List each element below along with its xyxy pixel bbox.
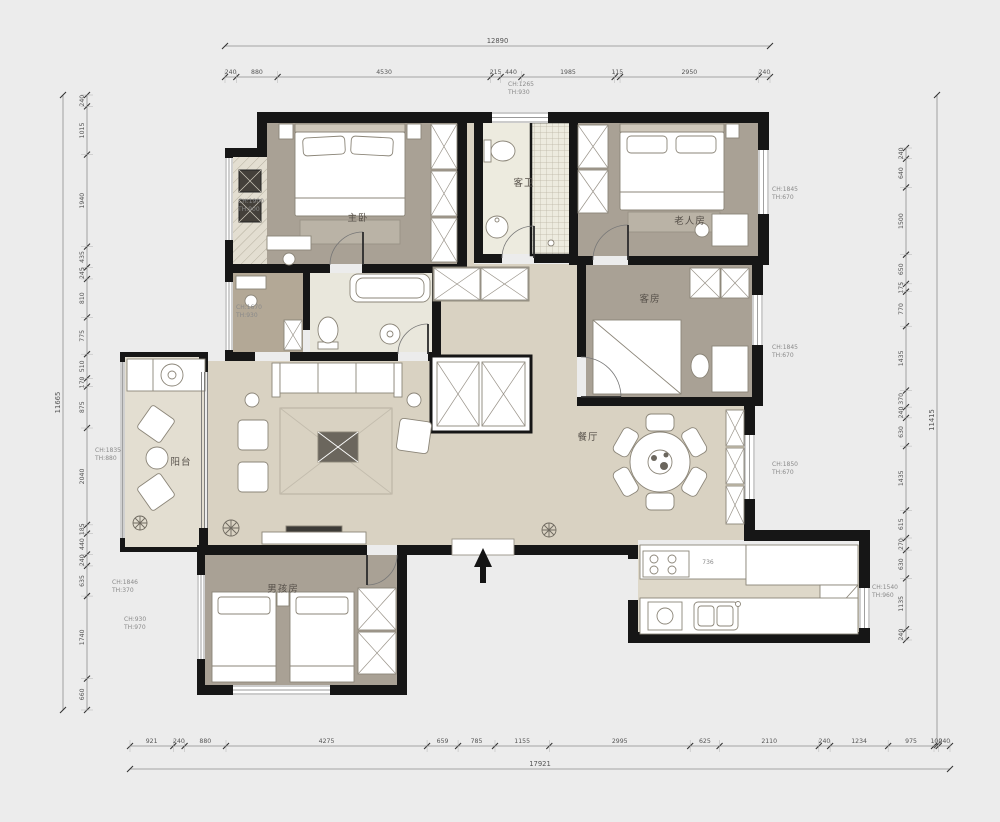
dimension-label: 775 (79, 330, 86, 342)
dimension-label: 510 (79, 360, 86, 372)
window (197, 575, 205, 659)
dimension-label: 2040 (79, 469, 86, 485)
dimension-label: 240 (225, 69, 237, 76)
window-annotation-dining-right: CH:1850TH:670 (771, 461, 798, 476)
wall (744, 530, 870, 541)
wall (197, 685, 233, 695)
dimension-label: 240 (819, 738, 831, 745)
window (492, 112, 548, 123)
dimension-total-label: 11665 (54, 392, 62, 414)
dimension-chain-bottom-total: 17921 (127, 760, 953, 772)
dimension-label: 4530 (376, 69, 392, 76)
wall (569, 112, 578, 263)
dimension-label: 1985 (560, 69, 576, 76)
cabinet-cell (431, 171, 457, 216)
cabinet-cell (481, 268, 528, 300)
room-label-elder-room: 老人房 (674, 215, 706, 227)
dimension-chain-top: 240880453021544019851152950240 (222, 69, 773, 83)
dimension-label: 1940 (79, 193, 86, 209)
window (233, 685, 330, 695)
cabinet-cell (431, 124, 457, 169)
floor (467, 123, 474, 264)
window-annotation-guest-right: CH:1845TH:670 (771, 344, 798, 359)
cabinet-cell (690, 268, 720, 298)
wall (290, 352, 398, 361)
window (225, 282, 233, 350)
wall (303, 273, 310, 330)
dimension-label: 650 (898, 263, 905, 275)
planter-box (239, 170, 261, 192)
window-annotation-boys-left-lower: CH:930TH:970 (123, 616, 146, 631)
dimension-label: 240 (898, 147, 905, 159)
cabinet-cell (578, 170, 608, 213)
window-annotation-bath-top: CH:1265TH:930 (507, 81, 534, 96)
dimension-label: 975 (905, 738, 917, 745)
wall (628, 600, 638, 643)
dimension-label: 1435 (898, 470, 905, 486)
dimension-label: 1500 (898, 213, 905, 229)
dimension-label: 240 (173, 738, 185, 745)
wall (457, 112, 467, 273)
wall (474, 112, 483, 263)
cabinet-cell (726, 486, 744, 524)
wall (397, 545, 407, 695)
dimension-chain-right-total: 11415 (928, 92, 940, 748)
room-label-guest-bathroom: 客卫 (513, 177, 534, 189)
dimension-label: 630 (898, 558, 905, 570)
dimension-chain-right: 2406401500650175770143537024063014356152… (898, 145, 912, 643)
window (859, 588, 870, 628)
dimension-label: 1135 (898, 596, 905, 612)
dimension-label: 215 (490, 69, 502, 76)
window (744, 435, 755, 499)
dimension-label: 880 (251, 69, 263, 76)
dimension-label: 1435 (898, 350, 905, 366)
cabinet-cell (726, 410, 744, 446)
dimension-label: 810 (79, 292, 86, 304)
cabinet-cell (434, 268, 480, 300)
wall (225, 352, 255, 361)
room-label-dining-room: 餐厅 (577, 431, 598, 443)
dimension-chain-top-total: 12890 (222, 37, 773, 49)
cabinet-cell (482, 362, 525, 426)
room-label-master-bedroom: 主卧 (347, 212, 368, 224)
dimension-chain-left-total: 11665 (54, 92, 66, 713)
wall (197, 545, 367, 555)
cabinet-cell (431, 218, 457, 262)
shower-tiles (531, 122, 572, 255)
dimension-label: 625 (699, 738, 711, 745)
plant-icon (542, 523, 556, 537)
wall (474, 254, 502, 263)
dimension-label: 240 (79, 554, 86, 566)
dimension-label: 921 (146, 738, 158, 745)
wall (628, 256, 769, 265)
dimension-label: 880 (199, 738, 211, 745)
floor-plan-stage: 1289024088045302154401985115295024011665… (0, 0, 1000, 822)
dimension-label: 2110 (761, 738, 777, 745)
window-annotation-elder-right: CH:1845TH:670 (771, 186, 798, 201)
counter-note: 736 (702, 559, 714, 566)
window (758, 150, 769, 214)
room-label-boys-room: 男孩房 (267, 583, 299, 595)
dimension-label: 630 (898, 426, 905, 438)
dimension-label: 1155 (514, 738, 530, 745)
cabinet-cell (358, 632, 396, 674)
window (752, 295, 763, 345)
dimension-label: 240 (938, 738, 950, 745)
dimension-label: 370 (898, 393, 905, 405)
dimension-label: 240 (898, 629, 905, 641)
wall (225, 264, 330, 273)
dimension-label: 615 (898, 518, 905, 530)
dimension-chain-bottom: 9212408804275659785115529956252110240123… (127, 738, 953, 752)
wall (577, 397, 760, 406)
dimension-label: 770 (898, 303, 905, 315)
dimension-label: 245 (79, 267, 86, 279)
dimension-label: 1740 (79, 629, 86, 645)
window-annotation-balcony-left: CH:1835TH:880 (94, 447, 121, 462)
dimension-label: 240 (79, 95, 86, 107)
plant-icon (133, 516, 147, 530)
dimension-label: 875 (79, 401, 86, 413)
wall (330, 685, 407, 695)
dimension-total-label: 12890 (487, 37, 509, 45)
cabinet-cell (437, 362, 479, 426)
dimension-label: 659 (437, 738, 449, 745)
cabinet-cell (721, 268, 749, 298)
dimension-label: 640 (898, 167, 905, 179)
dimension-label: 270 (898, 538, 905, 550)
wall (120, 352, 206, 357)
room-label-balcony: 阳台 (170, 456, 191, 468)
wall (120, 547, 206, 552)
dimension-label: 240 (898, 407, 905, 419)
dimension-label: 440 (79, 538, 86, 550)
dimension-label: 1015 (79, 123, 86, 139)
dimension-label: 4275 (319, 738, 335, 745)
dimension-label: 2995 (612, 738, 628, 745)
wall (199, 528, 208, 548)
window (225, 158, 233, 240)
dimension-total-label: 11415 (928, 409, 936, 431)
dimension-label: 660 (79, 688, 86, 700)
dimension-label: 185 (79, 523, 86, 535)
window-annotation-boys-left-upper: CH:1846TH:370 (111, 579, 138, 594)
cabinet-cell (578, 125, 608, 168)
dimension-total-label: 17921 (529, 760, 551, 768)
cabinet-cell (358, 588, 396, 630)
floor-plan: 1289024088045302154401985115295024011665… (0, 0, 1000, 822)
window-annotation-kitchen-right: CH:1540TH:960 (871, 584, 898, 599)
wall (577, 265, 586, 357)
dimension-label: 2950 (682, 69, 698, 76)
dimension-label: 635 (79, 575, 86, 587)
dimension-label: 435 (79, 251, 86, 263)
cabinet-cell (726, 448, 744, 484)
plant-icon (223, 520, 239, 536)
dimension-label: 240 (758, 69, 770, 76)
dimension-chain-left: 2401015194043524581077551017087520401854… (79, 92, 93, 713)
wall (569, 256, 593, 265)
dimension-label: 785 (471, 738, 483, 745)
dimension-label: 1234 (851, 738, 867, 745)
dimension-label: 440 (505, 69, 517, 76)
wall (512, 545, 638, 555)
cabinet-cell (284, 320, 302, 350)
room-label-guest-room: 客房 (639, 293, 660, 305)
